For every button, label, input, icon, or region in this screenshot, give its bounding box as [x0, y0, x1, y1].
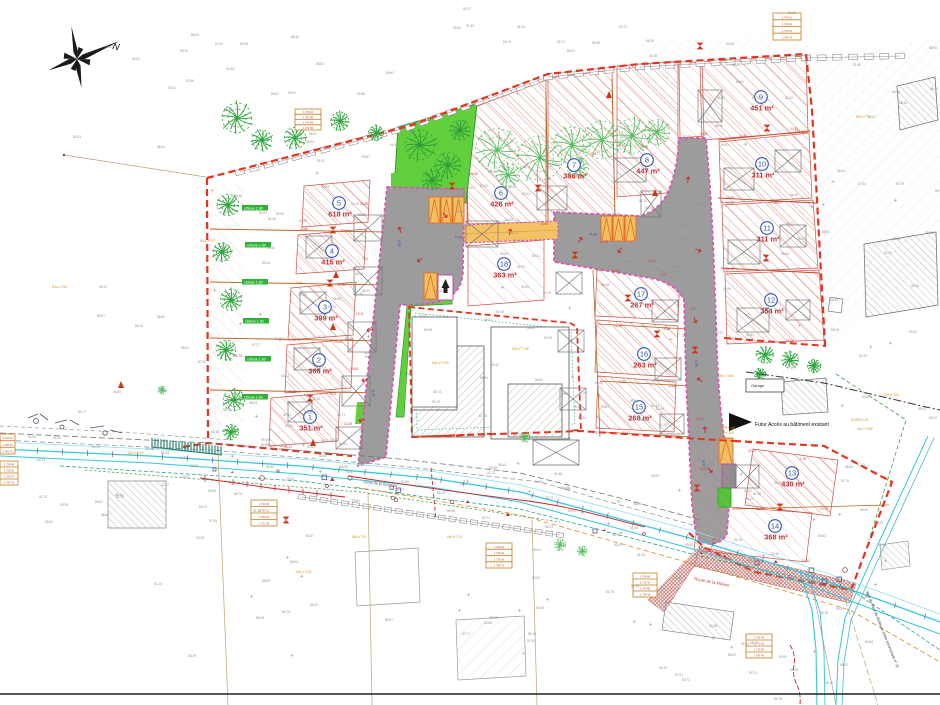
svg-text:51.71: 51.71 [694, 564, 702, 568]
svg-text:51.10: 51.10 [154, 582, 162, 586]
svg-text:59.17: 59.17 [78, 410, 86, 414]
svg-text:58.04: 58.04 [181, 346, 189, 350]
svg-text:14.72: 14.72 [778, 269, 786, 273]
svg-text:12: 12 [767, 296, 775, 305]
svg-text:54.80: 54.80 [157, 315, 165, 319]
svg-text:56.81: 56.81 [309, 132, 317, 136]
svg-text:57.75: 57.75 [841, 479, 849, 483]
svg-text:56.27: 56.27 [105, 45, 113, 49]
svg-text:451 m²: 451 m² [750, 104, 774, 113]
svg-text:59.83: 59.83 [685, 543, 693, 547]
svg-text:57.08: 57.08 [683, 135, 691, 139]
svg-text:59.67: 59.67 [362, 155, 370, 159]
svg-text:51.65: 51.65 [226, 67, 234, 71]
svg-text:MA n°185: MA n°185 [857, 427, 873, 431]
svg-text:56.10: 56.10 [797, 237, 805, 241]
svg-text:59.78: 59.78 [715, 124, 723, 128]
svg-text:53.69: 53.69 [622, 135, 630, 139]
svg-text:51.62: 51.62 [491, 363, 499, 367]
svg-text:1 730 49: 1 730 49 [259, 502, 270, 506]
svg-text:59.45: 59.45 [240, 42, 248, 46]
svg-text:53.02: 53.02 [288, 91, 296, 95]
svg-text:3.02: 3.02 [330, 392, 336, 396]
svg-text:55.01: 55.01 [532, 254, 540, 258]
svg-text:57.27: 57.27 [252, 343, 260, 347]
svg-text:19.88: 19.88 [350, 367, 358, 371]
svg-text:51.33: 51.33 [253, 509, 261, 513]
svg-text:53.84: 53.84 [500, 252, 508, 256]
svg-text:6.00: 6.00 [371, 390, 375, 397]
svg-text:59.45: 59.45 [489, 466, 497, 470]
svg-text:1 729 73: 1 729 73 [4, 475, 15, 479]
svg-text:57.01: 57.01 [675, 673, 683, 677]
svg-text:BAL n°47: BAL n°47 [200, 239, 215, 243]
svg-text:57.71: 57.71 [462, 632, 470, 636]
svg-text:1 716 34: 1 716 34 [494, 551, 505, 555]
svg-text:51.73: 51.73 [487, 471, 495, 475]
svg-text:18: 18 [500, 260, 508, 269]
svg-text:51.58: 51.58 [631, 584, 639, 588]
svg-text:Garage: Garage [751, 383, 765, 388]
svg-text:56.74: 56.74 [503, 40, 511, 44]
svg-text:363 m²: 363 m² [493, 271, 517, 280]
svg-text:52.51: 52.51 [132, 57, 140, 61]
svg-text:24.06: 24.06 [470, 172, 478, 176]
svg-text:1 747 75: 1 747 75 [4, 481, 15, 485]
svg-text:1 713 90: 1 713 90 [754, 648, 765, 652]
svg-text:55.02: 55.02 [728, 653, 736, 657]
svg-text:52.89: 52.89 [723, 287, 731, 291]
svg-text:53.66: 53.66 [320, 146, 328, 150]
svg-text:51.06: 51.06 [771, 552, 779, 556]
svg-text:59.35: 59.35 [563, 487, 571, 491]
svg-text:263 m²: 263 m² [633, 361, 657, 370]
svg-text:MA n°132: MA n°132 [296, 570, 312, 574]
svg-text:56.90: 56.90 [929, 46, 937, 50]
svg-text:15.37: 15.37 [700, 467, 708, 471]
svg-text:53.13: 53.13 [622, 143, 630, 147]
svg-text:55.08: 55.08 [831, 328, 839, 332]
svg-text:54.15: 54.15 [563, 437, 571, 441]
svg-text:55.19: 55.19 [825, 681, 833, 685]
svg-text:53.35: 53.35 [60, 503, 68, 507]
svg-text:55.70: 55.70 [432, 400, 440, 404]
svg-text:54.30: 54.30 [306, 411, 314, 415]
svg-text:51.94: 51.94 [679, 238, 687, 242]
svg-text:58.30: 58.30 [291, 35, 299, 39]
svg-text:57.78: 57.78 [479, 414, 487, 418]
svg-text:52.64: 52.64 [453, 26, 461, 30]
svg-text:13.98: 13.98 [540, 222, 548, 226]
svg-text:2.39: 2.39 [800, 457, 806, 461]
svg-text:53.67: 53.67 [460, 482, 468, 486]
svg-text:426 m²: 426 m² [490, 200, 514, 209]
svg-text:53.58: 53.58 [358, 213, 366, 217]
svg-text:51.29: 51.29 [659, 423, 667, 427]
svg-text:3.04: 3.04 [296, 281, 302, 285]
svg-text:57.52: 57.52 [579, 391, 587, 395]
svg-text:57.21: 57.21 [514, 433, 522, 437]
svg-text:MA n°186: MA n°186 [718, 374, 734, 378]
svg-text:52.88: 52.88 [357, 92, 365, 96]
svg-text:58.31: 58.31 [480, 376, 488, 380]
svg-text:24.65: 24.65 [618, 380, 626, 384]
svg-text:1 781 73: 1 781 73 [2, 450, 13, 454]
svg-text:4.67: 4.67 [690, 307, 696, 311]
svg-text:57.46: 57.46 [496, 310, 504, 314]
svg-text:51.00: 51.00 [725, 58, 733, 62]
svg-text:28.00: 28.00 [770, 199, 778, 203]
svg-text:52.01: 52.01 [168, 86, 176, 90]
svg-text:58.27: 58.27 [362, 289, 370, 293]
svg-text:56.39: 56.39 [517, 25, 525, 29]
svg-text:SURPLUS: SURPLUS [851, 418, 869, 422]
svg-text:53.39: 53.39 [196, 536, 204, 540]
svg-text:50.50: 50.50 [521, 285, 529, 289]
svg-text:52.90: 52.90 [748, 559, 756, 563]
svg-text:53.23: 53.23 [682, 334, 690, 338]
svg-text:11.26: 11.26 [668, 384, 676, 388]
svg-text:MA n°111: MA n°111 [884, 393, 899, 397]
svg-text:50.02: 50.02 [307, 445, 315, 449]
svg-text:57.59: 57.59 [209, 519, 217, 523]
svg-text:25.41: 25.41 [284, 445, 292, 449]
svg-text:52.95: 52.95 [278, 338, 286, 342]
svg-text:56.03: 56.03 [918, 407, 926, 411]
svg-text:59.05: 59.05 [726, 42, 734, 46]
svg-text:52.52: 52.52 [884, 251, 892, 255]
svg-text:clôture 1.80: clôture 1.80 [244, 280, 263, 284]
svg-text:52.32: 52.32 [224, 108, 232, 112]
svg-text:6.00: 6.00 [397, 240, 402, 247]
svg-text:58.78: 58.78 [234, 354, 242, 358]
svg-text:MA n°186: MA n°186 [719, 431, 734, 435]
svg-text:50.66: 50.66 [484, 621, 492, 625]
svg-text:51.87: 51.87 [161, 483, 169, 487]
svg-text:53.45: 53.45 [462, 224, 470, 228]
svg-text:53.99: 53.99 [875, 521, 883, 525]
svg-text:1 775 10: 1 775 10 [782, 29, 793, 33]
svg-text:MA n°182: MA n°182 [128, 451, 144, 455]
svg-text:56.41: 56.41 [705, 474, 713, 478]
svg-text:59.49: 59.49 [261, 438, 269, 442]
svg-text:18.88: 18.88 [726, 196, 734, 200]
svg-text:58.85: 58.85 [892, 90, 900, 94]
svg-text:51.59: 51.59 [753, 492, 761, 496]
svg-text:51.92: 51.92 [859, 354, 867, 358]
svg-text:55.72: 55.72 [484, 318, 492, 322]
svg-text:54.79: 54.79 [606, 590, 614, 594]
svg-text:55.57: 55.57 [675, 269, 683, 273]
svg-text:50.83: 50.83 [339, 442, 347, 446]
svg-text:22.97: 22.97 [590, 152, 598, 156]
svg-text:618 m²: 618 m² [328, 210, 352, 219]
svg-text:55.16: 55.16 [573, 405, 581, 409]
svg-text:58.02: 58.02 [316, 62, 324, 66]
svg-text:54.78: 54.78 [774, 697, 782, 701]
svg-text:58.64: 58.64 [845, 465, 853, 469]
svg-text:57.21: 57.21 [749, 671, 757, 675]
svg-text:50.74: 50.74 [482, 516, 490, 520]
svg-text:11: 11 [763, 224, 771, 233]
svg-text:56.12: 56.12 [745, 497, 753, 501]
svg-text:311 m²: 311 m² [751, 171, 775, 180]
svg-text:50.70: 50.70 [517, 265, 525, 269]
svg-text:20.88: 20.88 [360, 202, 368, 206]
svg-text:3.05: 3.05 [740, 134, 746, 138]
svg-text:55.96: 55.96 [343, 390, 351, 394]
svg-text:MA n°131: MA n°131 [447, 535, 463, 539]
svg-text:20.15: 20.15 [672, 435, 680, 439]
svg-text:53.71: 53.71 [405, 372, 413, 376]
svg-text:51.07: 51.07 [390, 143, 398, 147]
svg-text:56.43: 56.43 [830, 298, 838, 302]
svg-text:59.45: 59.45 [488, 170, 496, 174]
svg-text:55.98: 55.98 [447, 509, 455, 513]
svg-text:1 796 64: 1 796 64 [2, 443, 13, 447]
svg-text:50.76: 50.76 [543, 291, 551, 295]
svg-text:28.15: 28.15 [288, 390, 296, 394]
svg-text:55.19: 55.19 [528, 632, 536, 636]
svg-text:14: 14 [771, 522, 779, 531]
svg-text:59.24: 59.24 [466, 186, 474, 190]
svg-text:58.99: 58.99 [262, 579, 270, 583]
svg-text:8: 8 [645, 156, 649, 165]
svg-text:56.71: 56.71 [337, 413, 345, 417]
svg-text:54.46: 54.46 [151, 446, 159, 450]
svg-text:50.40: 50.40 [656, 407, 664, 411]
svg-text:58.93: 58.93 [290, 560, 298, 564]
svg-text:58.48: 58.48 [790, 668, 798, 672]
svg-text:52.12: 52.12 [351, 202, 359, 206]
svg-text:1 794 79: 1 794 79 [782, 36, 793, 40]
svg-text:54.75: 54.75 [282, 610, 290, 614]
svg-text:1 746 94: 1 746 94 [303, 110, 314, 114]
svg-text:56.93: 56.93 [671, 265, 679, 269]
svg-text:54.60: 54.60 [527, 326, 535, 330]
svg-text:51.26: 51.26 [734, 538, 742, 542]
svg-text:54.48: 54.48 [234, 194, 242, 198]
svg-text:51.04: 51.04 [262, 261, 270, 265]
svg-text:50.74: 50.74 [665, 201, 673, 205]
svg-text:1 742 51: 1 742 51 [782, 15, 793, 19]
svg-text:58.99: 58.99 [333, 297, 341, 301]
svg-text:51.35: 51.35 [211, 430, 219, 434]
svg-text:10.35: 10.35 [790, 127, 798, 131]
svg-text:59.34: 59.34 [836, 607, 844, 611]
svg-text:57.22: 57.22 [435, 289, 443, 293]
svg-text:51.26: 51.26 [268, 217, 276, 221]
svg-text:415 m²: 415 m² [321, 258, 345, 267]
svg-text:1 790 66: 1 790 66 [640, 575, 651, 579]
svg-text:1 780 62: 1 780 62 [259, 515, 270, 519]
svg-text:52.73: 52.73 [39, 495, 47, 499]
svg-text:clôture 1.80: clôture 1.80 [244, 206, 263, 210]
svg-text:58.73: 58.73 [433, 390, 441, 394]
svg-text:55.97: 55.97 [385, 618, 393, 622]
svg-text:399 m²: 399 m² [314, 314, 338, 323]
svg-text:25.81: 25.81 [340, 229, 348, 233]
svg-text:57.41: 57.41 [412, 190, 420, 194]
svg-text:55.56: 55.56 [355, 272, 363, 276]
svg-text:56.76: 56.76 [135, 324, 143, 328]
svg-text:13.35: 13.35 [344, 422, 352, 426]
svg-text:59.99: 59.99 [321, 185, 329, 189]
svg-text:58.04: 58.04 [594, 431, 602, 435]
svg-text:50.91: 50.91 [328, 305, 336, 309]
svg-text:BAL n°55: BAL n°55 [52, 285, 67, 289]
svg-text:51.22: 51.22 [330, 438, 338, 442]
svg-text:51.34: 51.34 [429, 477, 437, 481]
svg-text:57.86: 57.86 [401, 480, 409, 484]
svg-text:53.61: 53.61 [287, 477, 295, 481]
svg-text:56.16: 56.16 [899, 101, 907, 105]
svg-text:15: 15 [635, 403, 643, 412]
svg-text:59.81: 59.81 [352, 499, 360, 503]
svg-text:58.11: 58.11 [750, 641, 758, 645]
svg-text:1 769 62: 1 769 62 [494, 545, 505, 549]
svg-text:50.84: 50.84 [746, 333, 754, 337]
svg-text:1 721 50: 1 721 50 [303, 126, 314, 130]
svg-text:5: 5 [337, 199, 341, 208]
svg-text:56.64: 56.64 [837, 169, 845, 173]
svg-text:311 m²: 311 m² [756, 235, 780, 244]
svg-text:52.96: 52.96 [935, 189, 940, 193]
svg-text:58.22: 58.22 [840, 663, 848, 667]
svg-text:59.63: 59.63 [818, 534, 826, 538]
svg-text:51.03: 51.03 [683, 158, 691, 162]
svg-text:59.87: 59.87 [601, 405, 609, 409]
svg-text:54.31: 54.31 [510, 231, 518, 235]
svg-text:56.43: 56.43 [161, 451, 169, 455]
svg-text:267 m²: 267 m² [630, 301, 654, 310]
svg-text:366 m²: 366 m² [308, 367, 332, 376]
svg-text:57.12: 57.12 [318, 335, 326, 339]
svg-text:57.54: 57.54 [215, 42, 223, 46]
svg-text:58.83: 58.83 [781, 252, 789, 256]
svg-text:50.51: 50.51 [285, 424, 293, 428]
svg-text:59.57: 59.57 [97, 314, 105, 318]
svg-text:56.62: 56.62 [535, 378, 543, 382]
svg-text:Futur Accès au bâtiment exista: Futur Accès au bâtiment existant [755, 422, 829, 428]
svg-text:52.33: 52.33 [312, 397, 320, 401]
svg-text:54.23: 54.23 [396, 488, 404, 492]
svg-text:53.73: 53.73 [37, 458, 45, 462]
svg-text:53.30: 53.30 [893, 237, 901, 241]
svg-text:58.25: 58.25 [640, 418, 648, 422]
svg-text:57.92: 57.92 [527, 639, 535, 643]
svg-text:50.92: 50.92 [715, 331, 723, 335]
svg-text:59.62: 59.62 [386, 71, 394, 75]
svg-text:51.53: 51.53 [554, 163, 562, 167]
svg-text:54.06: 54.06 [536, 606, 544, 610]
svg-text:53.86: 53.86 [179, 456, 187, 460]
svg-text:59.54: 59.54 [267, 246, 275, 250]
svg-text:354 m²: 354 m² [760, 307, 784, 316]
svg-text:53.86: 53.86 [630, 399, 638, 403]
svg-text:55.00: 55.00 [45, 520, 53, 524]
svg-text:6: 6 [499, 189, 503, 198]
svg-text:56.68: 56.68 [865, 640, 873, 644]
svg-text:54.54: 54.54 [645, 206, 653, 210]
svg-text:54.00: 54.00 [340, 465, 348, 469]
svg-text:55.72: 55.72 [545, 496, 553, 500]
svg-text:50.52: 50.52 [909, 330, 917, 334]
svg-text:53.61: 53.61 [744, 489, 752, 493]
svg-text:59.95: 59.95 [190, 464, 198, 468]
svg-text:53.87: 53.87 [862, 395, 870, 399]
svg-text:22.12: 22.12 [748, 449, 756, 453]
svg-text:53.67: 53.67 [868, 115, 876, 119]
svg-text:16.68: 16.68 [786, 339, 794, 343]
svg-text:52.16: 52.16 [670, 214, 678, 218]
svg-text:52.14: 52.14 [442, 267, 450, 271]
svg-text:58.79: 58.79 [878, 543, 886, 547]
svg-text:1 776 56: 1 776 56 [494, 557, 505, 561]
svg-text:59.41: 59.41 [283, 413, 291, 417]
svg-text:51.03: 51.03 [92, 445, 100, 449]
svg-text:1 724 69: 1 724 69 [4, 463, 15, 467]
svg-text:50.37: 50.37 [346, 470, 354, 474]
svg-text:1 721 38: 1 721 38 [259, 522, 270, 526]
svg-text:54.60: 54.60 [113, 390, 121, 394]
svg-text:1 716 36: 1 716 36 [640, 581, 651, 585]
svg-text:58.86: 58.86 [101, 513, 109, 517]
svg-text:56.81: 56.81 [736, 80, 744, 84]
svg-text:50.60: 50.60 [276, 212, 284, 216]
svg-text:53.38: 53.38 [709, 624, 717, 628]
svg-text:22.47: 22.47 [622, 431, 630, 435]
svg-text:52.39: 52.39 [544, 336, 552, 340]
svg-text:1 744 80: 1 744 80 [640, 587, 651, 591]
svg-text:58.65: 58.65 [191, 33, 199, 37]
svg-text:59.41: 59.41 [99, 285, 107, 289]
svg-text:29.49: 29.49 [696, 417, 704, 421]
svg-text:59.88: 59.88 [261, 443, 269, 447]
svg-text:57.20: 57.20 [403, 355, 411, 359]
svg-text:clôture 1.80: clôture 1.80 [247, 243, 266, 247]
svg-text:54.36: 54.36 [601, 283, 609, 287]
svg-text:13: 13 [788, 469, 796, 478]
svg-text:51.04: 51.04 [116, 495, 124, 499]
svg-text:52.32: 52.32 [785, 96, 793, 100]
svg-text:28.20: 28.20 [712, 537, 720, 541]
svg-text:7: 7 [572, 161, 576, 170]
svg-text:54.00: 54.00 [505, 218, 513, 222]
svg-text:58.11: 58.11 [786, 222, 794, 226]
svg-text:57.87: 57.87 [270, 444, 278, 448]
svg-text:54.03: 54.03 [545, 525, 553, 529]
svg-text:56.70: 56.70 [373, 329, 381, 333]
svg-text:59.66: 59.66 [566, 212, 574, 216]
svg-text:1 726 46: 1 726 46 [640, 593, 651, 597]
svg-text:57.03: 57.03 [858, 182, 866, 186]
svg-text:50.16: 50.16 [345, 336, 353, 340]
svg-text:SURPLUS: SURPLUS [719, 426, 736, 430]
svg-text:53.19: 53.19 [490, 616, 498, 620]
svg-text:58.17: 58.17 [412, 434, 420, 438]
svg-text:59.12: 59.12 [199, 505, 207, 509]
svg-text:55.27: 55.27 [694, 252, 702, 256]
svg-text:54.82: 54.82 [299, 219, 307, 223]
svg-text:50.68: 50.68 [319, 454, 327, 458]
svg-text:54.71: 54.71 [557, 40, 565, 44]
svg-text:59.51: 59.51 [721, 143, 729, 147]
svg-text:58.73: 58.73 [223, 408, 231, 412]
svg-text:55.75: 55.75 [234, 492, 242, 496]
svg-text:2: 2 [317, 356, 321, 365]
svg-text:9.64: 9.64 [664, 327, 670, 331]
